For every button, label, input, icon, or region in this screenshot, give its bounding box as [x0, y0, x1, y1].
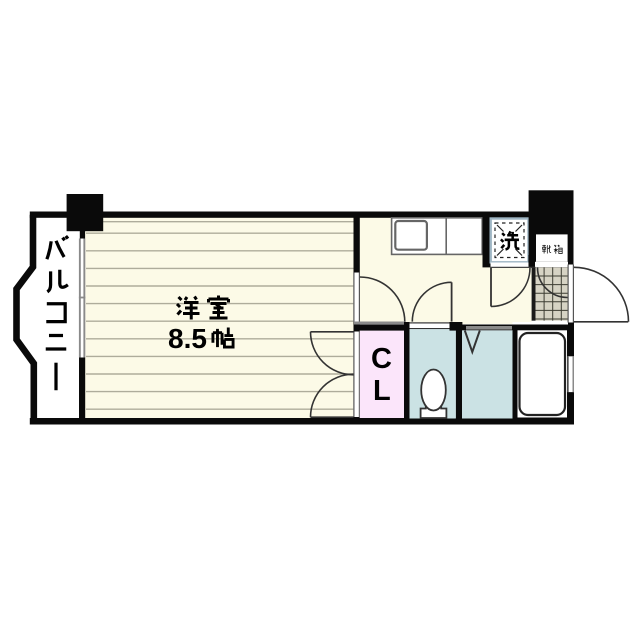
svg-text:8.5: 8.5	[168, 323, 207, 354]
svg-text:L: L	[373, 375, 391, 407]
svg-text:C: C	[371, 343, 392, 375]
